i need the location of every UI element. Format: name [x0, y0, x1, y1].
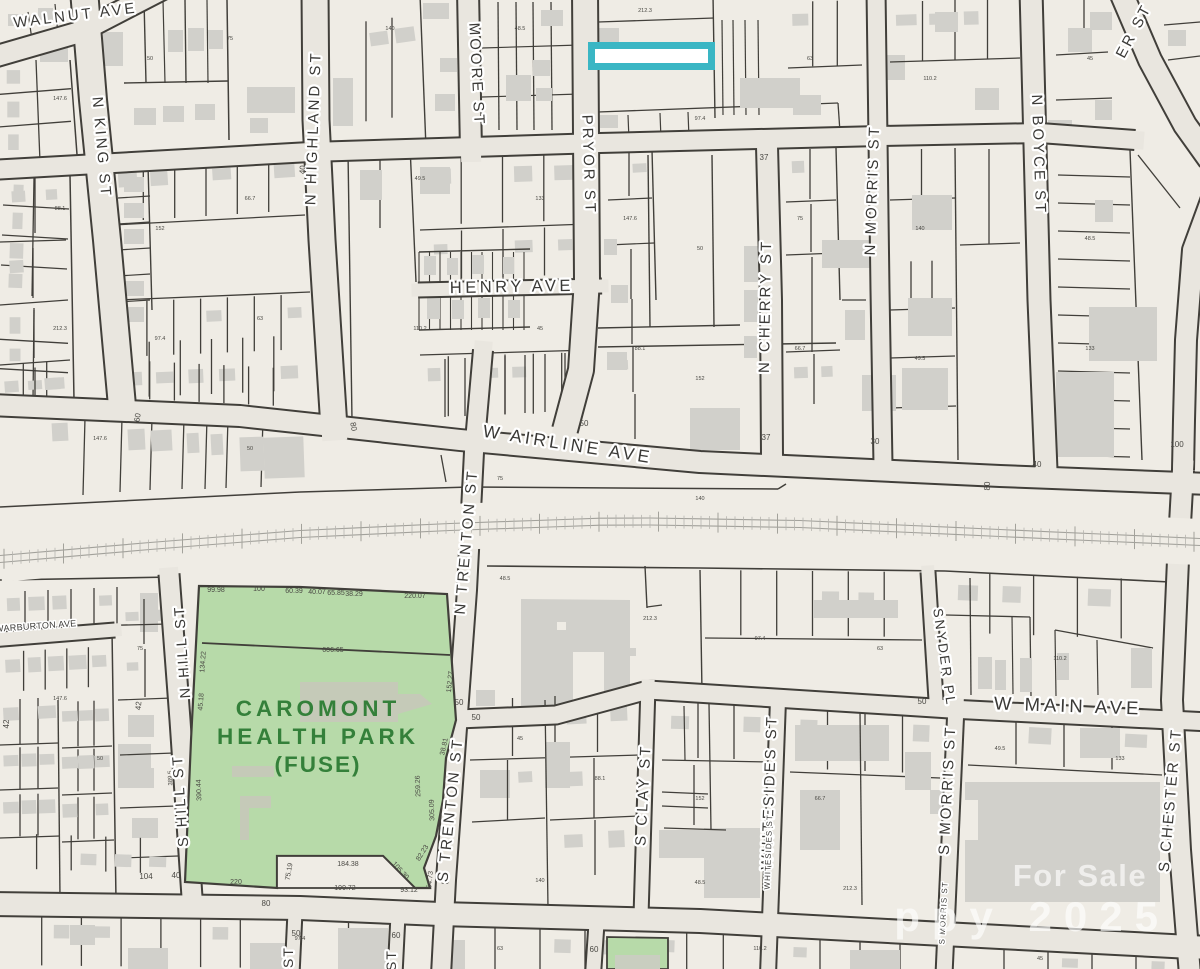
svg-text:63: 63 [877, 646, 883, 652]
svg-text:212.3: 212.3 [53, 326, 67, 332]
svg-text:147.6: 147.6 [53, 696, 67, 702]
svg-text:63: 63 [497, 946, 503, 952]
svg-text:606.65: 606.65 [322, 647, 344, 654]
svg-text:212.3: 212.3 [643, 616, 657, 622]
svg-text:66.7: 66.7 [245, 196, 256, 202]
svg-text:45: 45 [537, 326, 543, 332]
svg-text:305.09: 305.09 [429, 799, 437, 821]
svg-text:134.22: 134.22 [199, 651, 207, 673]
svg-text:133: 133 [535, 196, 544, 202]
svg-text:For Sale: For Sale [1013, 858, 1147, 893]
svg-text:110.2: 110.2 [413, 326, 426, 332]
svg-text:88.1: 88.1 [595, 776, 606, 782]
svg-text:184.38: 184.38 [337, 861, 359, 868]
svg-text:110.2: 110.2 [753, 946, 766, 952]
svg-text:(FUSE): (FUSE) [275, 752, 362, 777]
svg-text:152: 152 [695, 796, 704, 802]
svg-text:97.4: 97.4 [695, 116, 706, 122]
svg-text:88.1: 88.1 [635, 346, 646, 352]
svg-text:110.2: 110.2 [1053, 656, 1066, 662]
svg-text:50: 50 [580, 419, 589, 428]
svg-text:110.2: 110.2 [923, 76, 936, 82]
svg-text:45: 45 [1037, 956, 1043, 962]
svg-text:42: 42 [2, 719, 11, 728]
svg-text:199.72: 199.72 [334, 885, 356, 892]
svg-text:40: 40 [172, 871, 181, 880]
svg-text:93.12: 93.12 [400, 887, 418, 894]
svg-text:66.7: 66.7 [795, 346, 806, 352]
svg-text:48.5: 48.5 [500, 576, 511, 582]
svg-text:50: 50 [697, 246, 703, 252]
svg-text:50: 50 [247, 446, 253, 452]
svg-text:45.18: 45.18 [197, 693, 205, 711]
svg-text:147.6: 147.6 [93, 436, 107, 442]
svg-text:88.1: 88.1 [55, 206, 66, 212]
svg-text:38.29: 38.29 [345, 591, 363, 598]
svg-text:390.44: 390.44 [196, 779, 204, 801]
svg-text:60.39: 60.39 [285, 588, 303, 595]
svg-text:45: 45 [517, 736, 523, 742]
svg-text:60: 60 [590, 945, 599, 954]
svg-text:60: 60 [392, 931, 401, 940]
svg-text:212.3: 212.3 [843, 886, 857, 892]
svg-text:63: 63 [257, 316, 263, 322]
svg-text:75: 75 [797, 216, 803, 222]
svg-text:80: 80 [983, 481, 992, 490]
svg-text:133: 133 [1115, 756, 1124, 762]
svg-text:50: 50 [97, 756, 103, 762]
svg-text:140: 140 [915, 226, 924, 232]
svg-text:104: 104 [139, 872, 153, 881]
svg-text:147.6: 147.6 [623, 216, 637, 222]
svg-text:HENRY AVE: HENRY AVE [450, 277, 574, 297]
svg-text:49.5: 49.5 [415, 176, 426, 182]
svg-text:49.5: 49.5 [915, 356, 926, 362]
svg-text:80: 80 [262, 899, 271, 908]
svg-text:140: 140 [695, 496, 704, 502]
svg-text:220.07: 220.07 [404, 593, 426, 600]
svg-text:48.5: 48.5 [1085, 236, 1096, 242]
svg-text:30: 30 [871, 437, 880, 446]
svg-text:40: 40 [1033, 460, 1042, 469]
svg-text:75: 75 [137, 646, 143, 652]
svg-text:45: 45 [1087, 56, 1093, 62]
svg-text:N CHERRY ST: N CHERRY ST [756, 239, 775, 373]
svg-text:133: 133 [1085, 346, 1094, 352]
svg-text:48.5: 48.5 [695, 880, 706, 886]
svg-text:212.3: 212.3 [638, 8, 652, 14]
svg-text:99.98: 99.98 [207, 587, 225, 594]
svg-text:50: 50 [918, 697, 927, 706]
svg-text:100: 100 [1170, 440, 1184, 449]
svg-text:HEALTH PARK: HEALTH PARK [217, 724, 419, 749]
svg-text:152: 152 [155, 226, 164, 232]
svg-text:100: 100 [253, 586, 265, 593]
svg-text:37: 37 [760, 153, 769, 162]
svg-text:49.5: 49.5 [995, 746, 1006, 752]
svg-text:PRYOR ST: PRYOR ST [578, 114, 598, 215]
svg-text:ST: ST [280, 946, 296, 968]
svg-text:42: 42 [134, 700, 144, 710]
svg-text:CAROMONT: CAROMONT [236, 696, 400, 721]
svg-text:66.7: 66.7 [815, 796, 826, 802]
svg-text:152: 152 [695, 376, 704, 382]
svg-text:140: 140 [535, 878, 544, 884]
svg-text:37: 37 [762, 433, 771, 442]
svg-text:259.26: 259.26 [415, 775, 423, 797]
svg-text:50: 50 [455, 698, 464, 707]
svg-text:140: 140 [385, 26, 394, 32]
svg-text:75: 75 [227, 36, 233, 42]
svg-text:ppy 2025: ppy 2025 [894, 893, 1170, 940]
svg-text:ST: ST [383, 949, 399, 969]
svg-text:50: 50 [472, 713, 481, 722]
svg-text:63: 63 [807, 56, 813, 62]
svg-text:97.4: 97.4 [295, 936, 306, 942]
svg-text:75: 75 [497, 476, 503, 482]
svg-text:97.4: 97.4 [155, 336, 166, 342]
svg-text:40: 40 [298, 164, 308, 174]
svg-text:48.5: 48.5 [515, 26, 526, 32]
svg-text:65.85: 65.85 [327, 590, 345, 597]
svg-text:40.07: 40.07 [308, 589, 326, 596]
svg-text:50: 50 [147, 56, 153, 62]
svg-text:97.4: 97.4 [755, 636, 766, 642]
svg-text:220: 220 [230, 879, 242, 886]
svg-text:147.6: 147.6 [53, 96, 67, 102]
